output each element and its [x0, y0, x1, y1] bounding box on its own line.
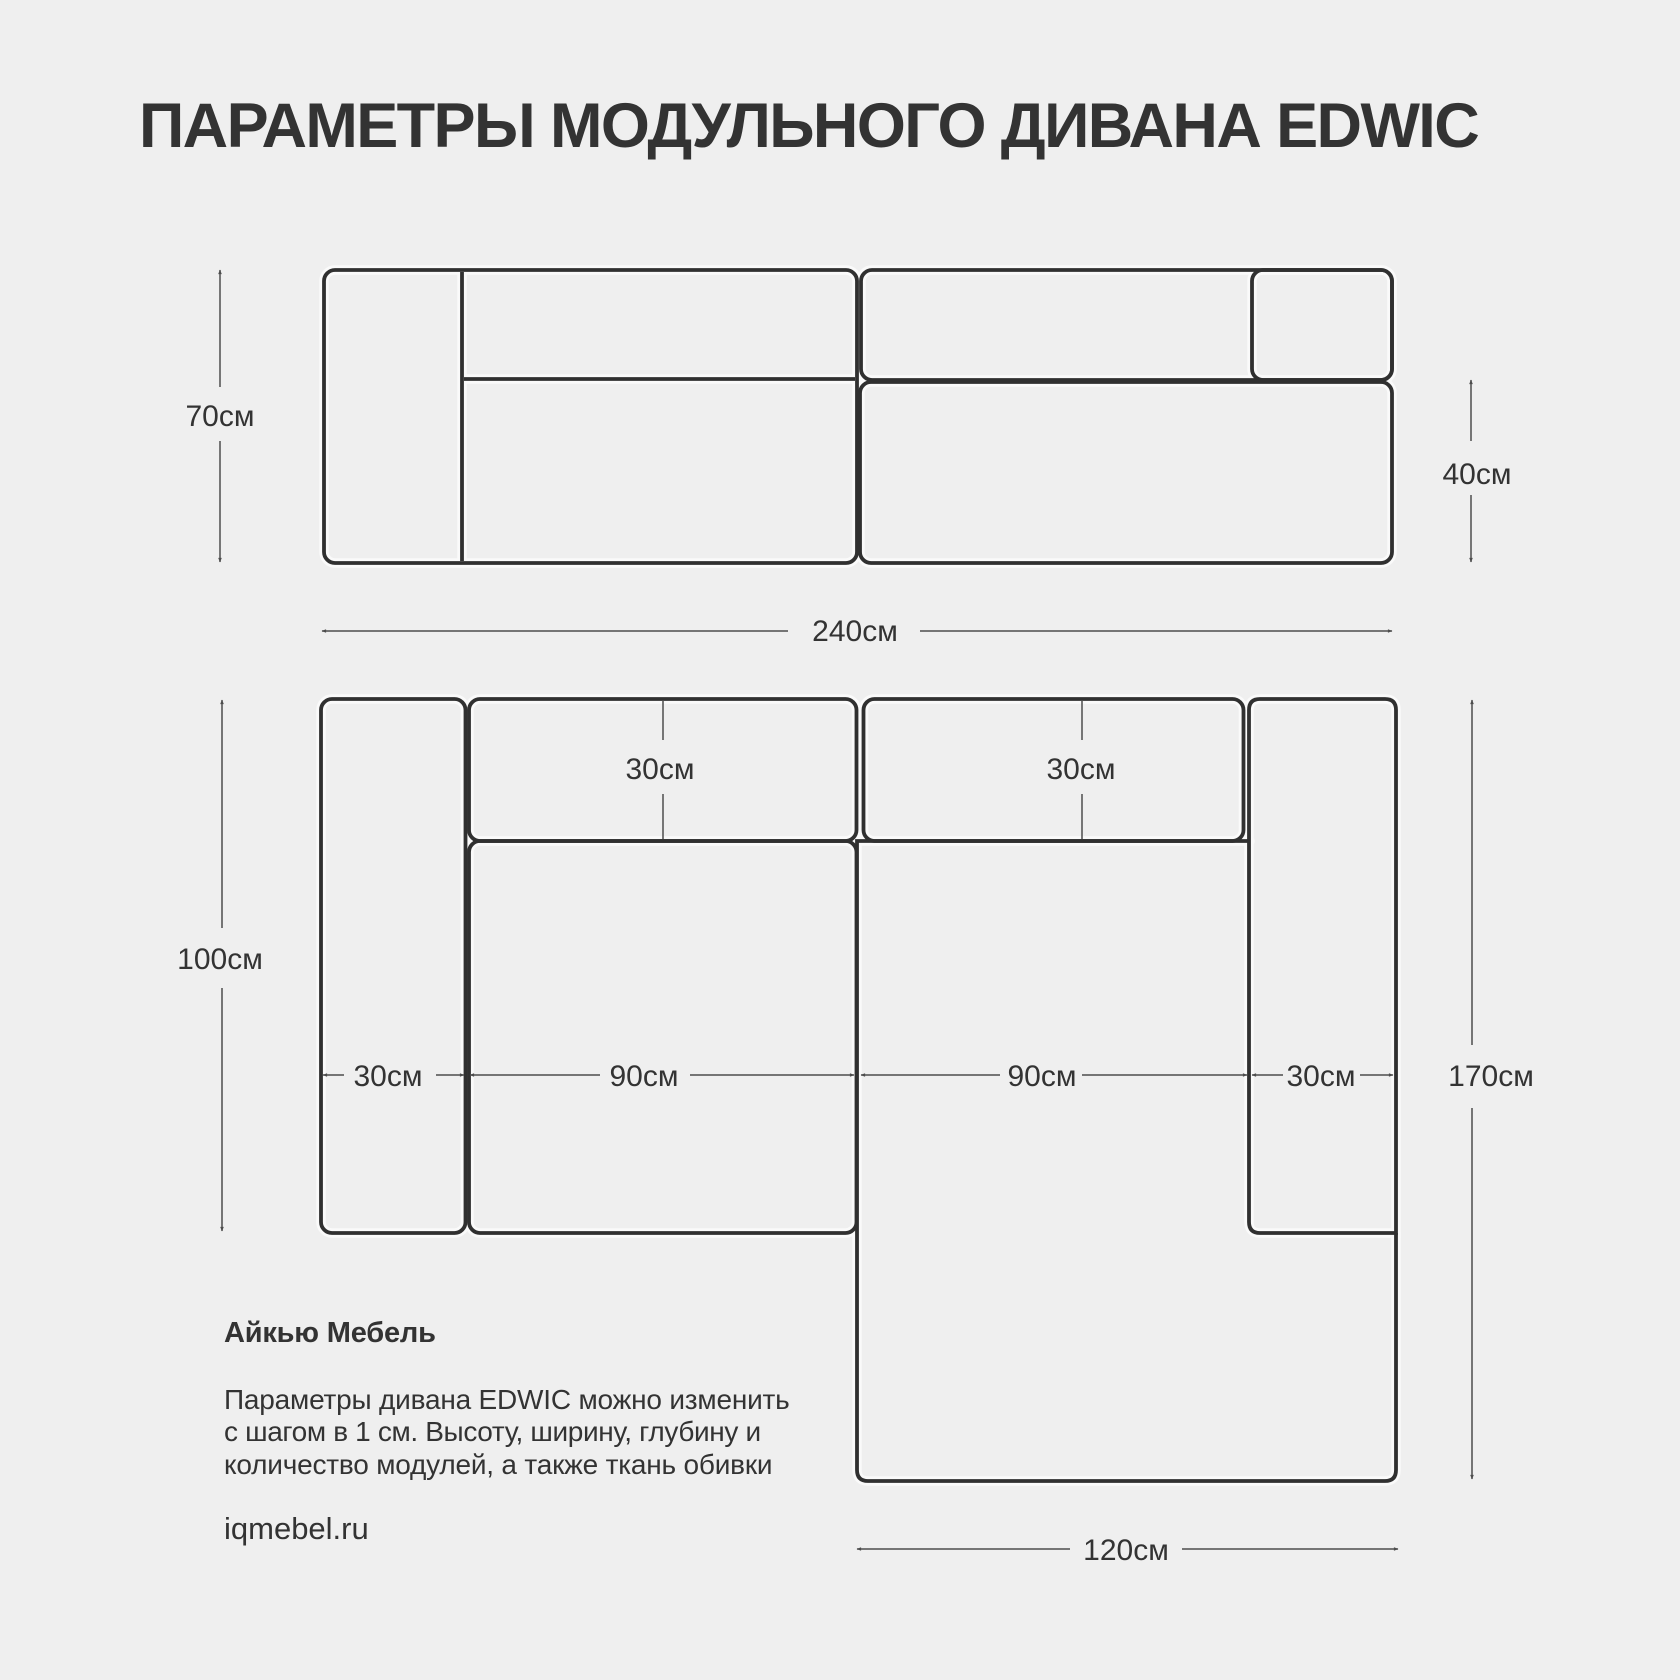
svg-text:количество модулей, а также тк: количество модулей, а также ткань обивки	[224, 1449, 772, 1480]
svg-text:90см: 90см	[610, 1060, 679, 1093]
svg-text:170см: 170см	[1448, 1060, 1534, 1093]
svg-text:Айкью Мебель: Айкью Мебель	[224, 1317, 436, 1349]
svg-text:30см: 30см	[1047, 753, 1116, 786]
svg-text:Параметры дивана EDWIC можно и: Параметры дивана EDWIC можно изменить	[224, 1384, 790, 1415]
svg-text:30см: 30см	[626, 753, 695, 786]
svg-text:iqmebel.ru: iqmebel.ru	[224, 1511, 369, 1546]
svg-text:40см: 40см	[1443, 458, 1512, 491]
svg-text:120см: 120см	[1083, 1534, 1169, 1567]
svg-text:90см: 90см	[1008, 1060, 1077, 1093]
svg-text:100см: 100см	[177, 943, 263, 976]
svg-text:с шагом в 1 см. Высоту, ширину: с шагом в 1 см. Высоту, ширину, глубину …	[224, 1416, 761, 1447]
svg-text:70см: 70см	[186, 400, 255, 433]
svg-text:240см: 240см	[812, 615, 898, 648]
svg-text:30см: 30см	[354, 1060, 423, 1093]
svg-text:30см: 30см	[1287, 1060, 1356, 1093]
svg-text:ПАРАМЕТРЫ МОДУЛЬНОГО ДИВАНА ED: ПАРАМЕТРЫ МОДУЛЬНОГО ДИВАНА EDWIC	[139, 91, 1478, 161]
